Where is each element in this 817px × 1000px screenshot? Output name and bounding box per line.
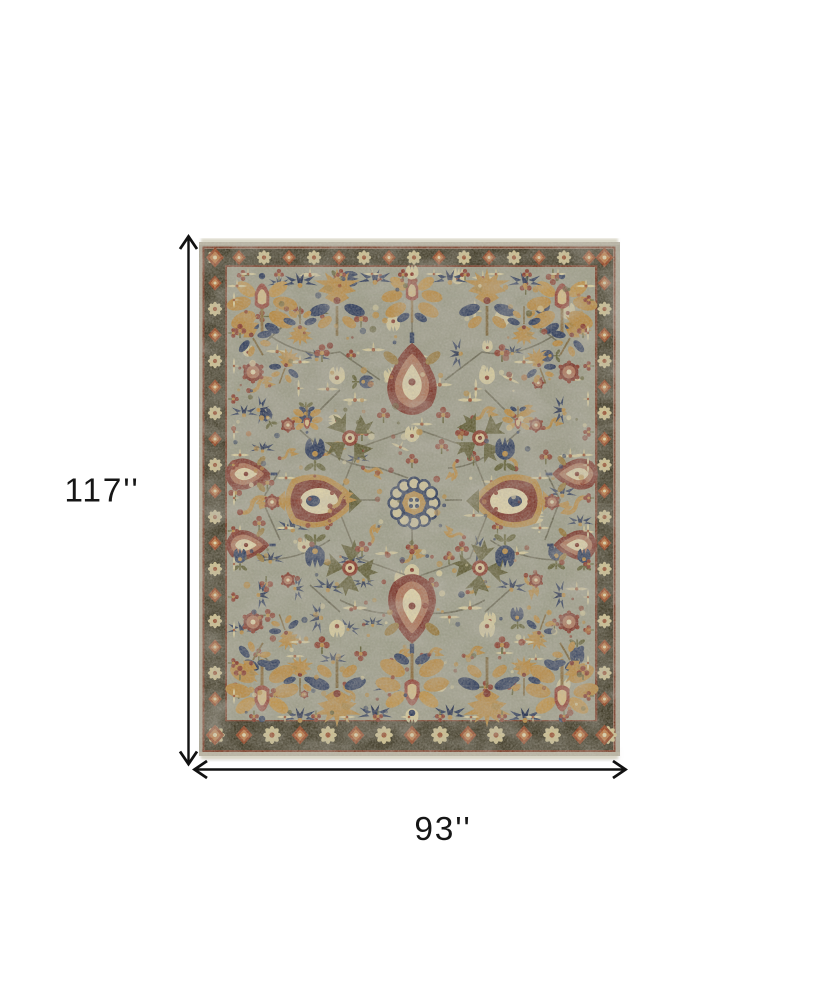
svg-text:117'': 117'' xyxy=(64,473,139,510)
svg-text:93'': 93'' xyxy=(414,811,471,848)
